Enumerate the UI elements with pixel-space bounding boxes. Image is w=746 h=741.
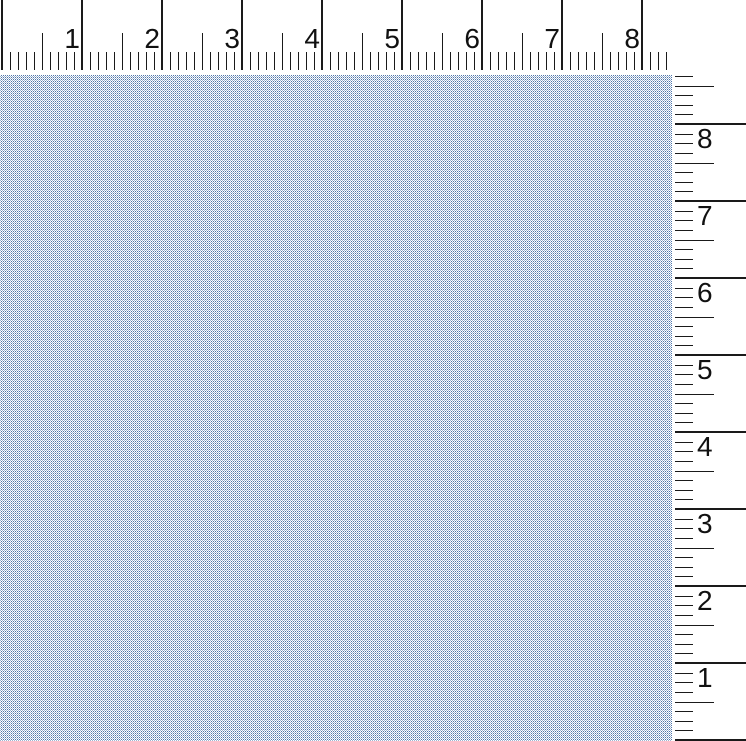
v-minor-tick — [675, 268, 693, 269]
v-minor-tick — [675, 644, 693, 645]
top-ruler-number: 3 — [216, 25, 240, 55]
h-minor-tick — [658, 52, 659, 70]
h-minor-tick — [338, 52, 339, 70]
right-ruler-number: 6 — [697, 279, 719, 309]
h-minor-tick — [274, 52, 275, 70]
v-minor-tick — [675, 336, 693, 337]
v-minor-tick — [675, 499, 693, 500]
h-half-tick — [282, 33, 283, 70]
v-minor-tick — [675, 692, 693, 693]
h-minor-tick — [106, 52, 107, 70]
v-minor-tick — [675, 374, 693, 375]
v-minor-tick — [675, 442, 693, 443]
h-minor-tick — [290, 52, 291, 70]
v-half-tick — [675, 394, 714, 395]
v-half-tick — [675, 317, 714, 318]
v-minor-tick — [675, 461, 693, 462]
h-minor-tick — [490, 52, 491, 70]
h-minor-tick — [594, 52, 595, 70]
h-minor-tick — [450, 52, 451, 70]
v-minor-tick — [675, 557, 693, 558]
h-minor-tick — [114, 52, 115, 70]
v-half-tick — [675, 86, 714, 87]
v-minor-tick — [675, 605, 693, 606]
v-minor-tick — [675, 105, 693, 106]
v-minor-tick — [675, 259, 693, 260]
v-minor-tick — [675, 326, 693, 327]
v-minor-tick — [675, 384, 693, 385]
h-minor-tick — [530, 52, 531, 70]
screen: 12345678 87654321 — [0, 0, 746, 741]
h-half-tick — [202, 33, 203, 70]
h-minor-tick — [354, 52, 355, 70]
h-minor-tick — [90, 52, 91, 70]
h-minor-tick — [98, 52, 99, 70]
v-minor-tick — [675, 615, 693, 616]
top-ruler-number: 1 — [56, 25, 80, 55]
top-ruler[interactable]: 12345678 — [0, 0, 746, 75]
h-half-tick — [602, 33, 603, 70]
h-minor-tick — [18, 52, 19, 70]
h-inch-tick — [161, 0, 163, 70]
v-minor-tick — [675, 365, 693, 366]
h-minor-tick — [410, 52, 411, 70]
v-half-tick — [675, 702, 714, 703]
v-minor-tick — [675, 134, 693, 135]
v-minor-tick — [675, 422, 693, 423]
h-half-tick — [362, 33, 363, 70]
h-minor-tick — [170, 52, 171, 70]
v-minor-tick — [675, 673, 693, 674]
h-inch-tick — [81, 0, 83, 70]
right-ruler-number: 5 — [697, 356, 719, 386]
right-ruler-number: 8 — [697, 125, 719, 155]
h-minor-tick — [578, 52, 579, 70]
v-minor-tick — [675, 711, 693, 712]
v-minor-tick — [675, 519, 693, 520]
v-minor-tick — [675, 490, 693, 491]
v-minor-tick — [675, 721, 693, 722]
right-ruler-number: 7 — [697, 202, 719, 232]
v-minor-tick — [675, 249, 693, 250]
h-half-tick — [42, 33, 43, 70]
v-minor-tick — [675, 76, 693, 77]
v-minor-tick — [675, 576, 693, 577]
v-minor-tick — [675, 95, 693, 96]
v-minor-tick — [675, 596, 693, 597]
h-inch-tick — [1, 0, 3, 70]
v-minor-tick — [675, 480, 693, 481]
h-minor-tick — [346, 52, 347, 70]
h-inch-tick — [401, 0, 403, 70]
top-ruler-number: 7 — [536, 25, 560, 55]
h-minor-tick — [266, 52, 267, 70]
top-ruler-number: 2 — [136, 25, 160, 55]
h-inch-tick — [561, 0, 563, 70]
v-minor-tick — [675, 191, 693, 192]
v-minor-tick — [675, 653, 693, 654]
h-minor-tick — [610, 52, 611, 70]
right-ruler-number: 3 — [697, 510, 719, 540]
h-minor-tick — [26, 52, 27, 70]
h-half-tick — [122, 33, 123, 70]
v-minor-tick — [675, 297, 693, 298]
v-minor-tick — [675, 403, 693, 404]
v-half-tick — [675, 471, 714, 472]
v-minor-tick — [675, 143, 693, 144]
v-minor-tick — [675, 528, 693, 529]
v-minor-tick — [675, 413, 693, 414]
h-minor-tick — [34, 52, 35, 70]
v-minor-tick — [675, 730, 693, 731]
desktop-pattern-background — [0, 75, 672, 741]
right-ruler-number: 1 — [697, 664, 719, 694]
h-minor-tick — [426, 52, 427, 70]
v-half-tick — [675, 548, 714, 549]
v-minor-tick — [675, 220, 693, 221]
h-minor-tick — [250, 52, 251, 70]
right-ruler-number: 2 — [697, 587, 719, 617]
h-inch-tick — [481, 0, 483, 70]
v-half-tick — [675, 240, 714, 241]
v-minor-tick — [675, 634, 693, 635]
h-inch-tick — [641, 0, 643, 70]
v-half-tick — [675, 625, 714, 626]
v-minor-tick — [675, 345, 693, 346]
top-ruler-number: 6 — [456, 25, 480, 55]
v-half-tick — [675, 163, 714, 164]
v-minor-tick — [675, 682, 693, 683]
right-ruler[interactable]: 87654321 — [672, 0, 746, 741]
h-minor-tick — [586, 52, 587, 70]
h-minor-tick — [330, 52, 331, 70]
v-minor-tick — [675, 307, 693, 308]
h-minor-tick — [498, 52, 499, 70]
h-minor-tick — [434, 52, 435, 70]
h-minor-tick — [10, 52, 11, 70]
h-half-tick — [442, 33, 443, 70]
h-minor-tick — [418, 52, 419, 70]
h-minor-tick — [666, 52, 667, 70]
h-minor-tick — [650, 52, 651, 70]
v-minor-tick — [675, 211, 693, 212]
h-minor-tick — [514, 52, 515, 70]
h-minor-tick — [210, 52, 211, 70]
top-ruler-number: 5 — [376, 25, 400, 55]
h-inch-tick — [321, 0, 323, 70]
v-minor-tick — [675, 538, 693, 539]
right-ruler-number: 4 — [697, 433, 719, 463]
h-minor-tick — [506, 52, 507, 70]
v-minor-tick — [675, 182, 693, 183]
v-minor-tick — [675, 288, 693, 289]
v-minor-tick — [675, 153, 693, 154]
h-minor-tick — [370, 52, 371, 70]
h-inch-tick — [241, 0, 243, 70]
v-minor-tick — [675, 567, 693, 568]
h-minor-tick — [178, 52, 179, 70]
v-minor-tick — [675, 451, 693, 452]
top-ruler-number: 8 — [616, 25, 640, 55]
h-minor-tick — [258, 52, 259, 70]
h-minor-tick — [130, 52, 131, 70]
top-ruler-number: 4 — [296, 25, 320, 55]
v-minor-tick — [675, 230, 693, 231]
h-minor-tick — [194, 52, 195, 70]
h-minor-tick — [186, 52, 187, 70]
h-minor-tick — [50, 52, 51, 70]
v-minor-tick — [675, 114, 693, 115]
h-minor-tick — [570, 52, 571, 70]
h-half-tick — [522, 33, 523, 70]
v-minor-tick — [675, 172, 693, 173]
